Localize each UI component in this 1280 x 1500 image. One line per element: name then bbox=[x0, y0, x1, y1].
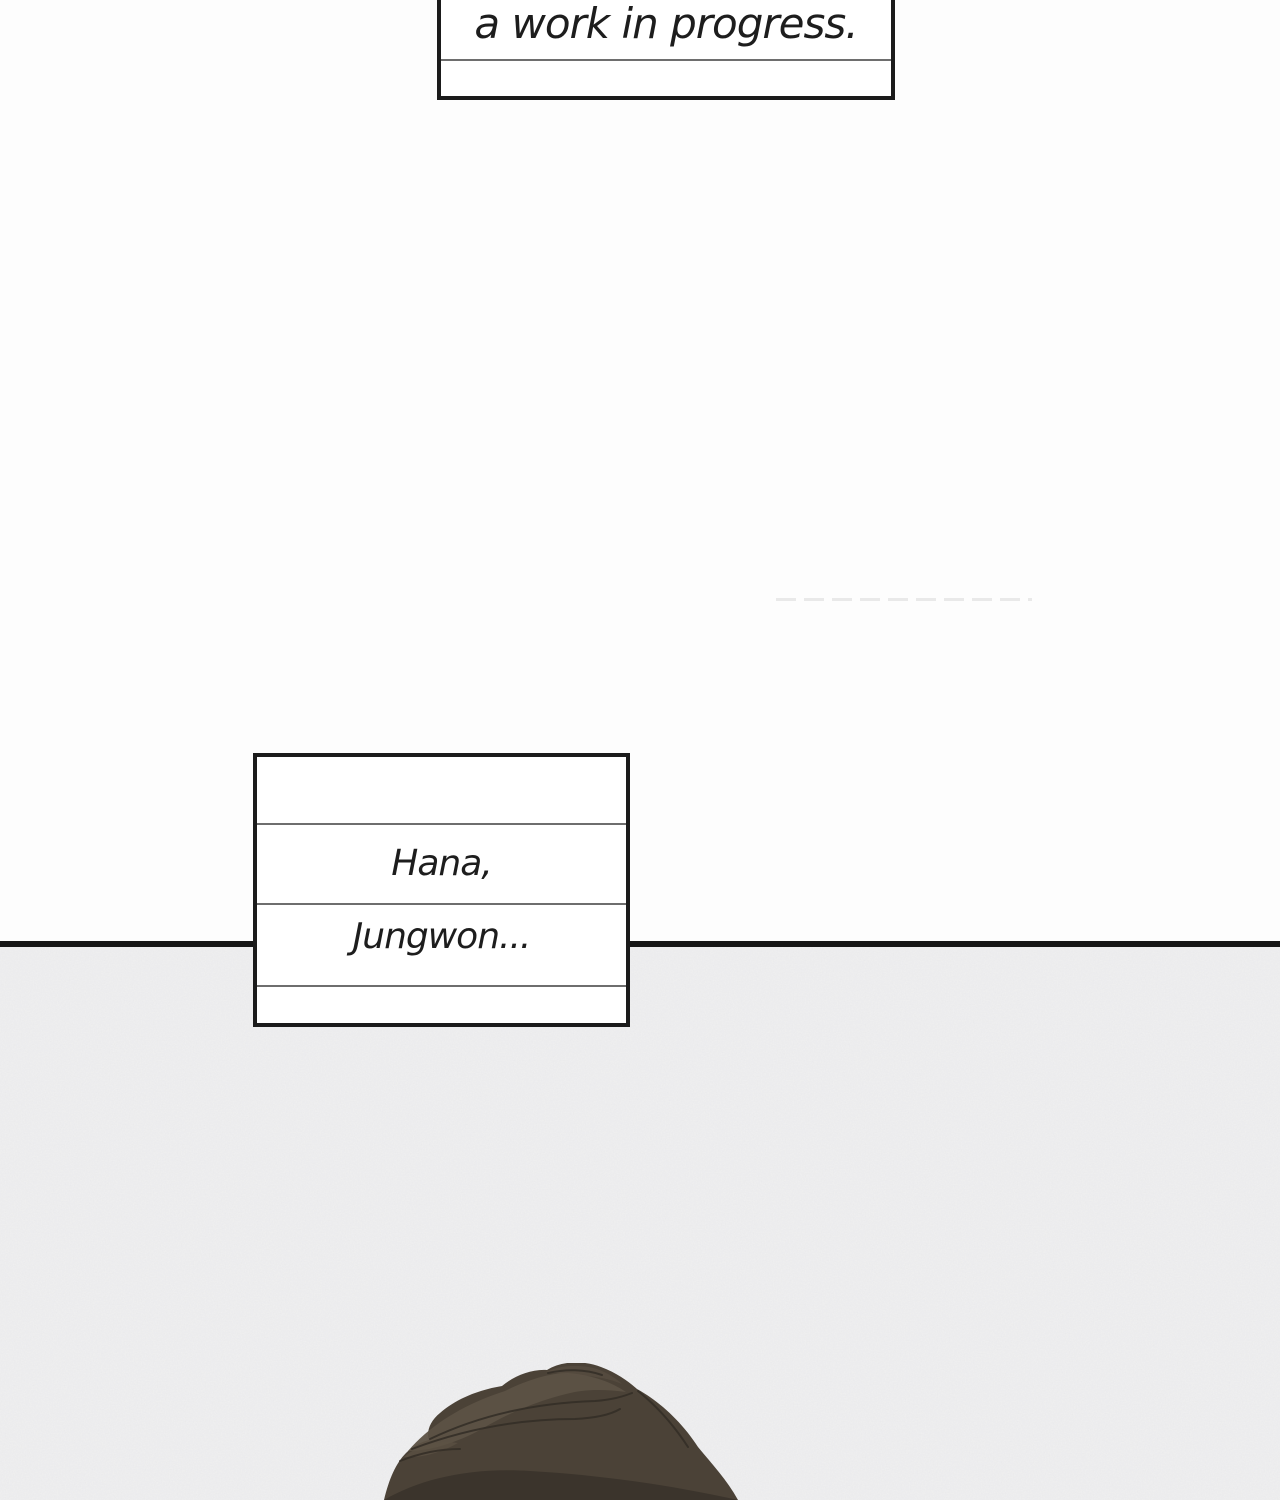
middle-caption-row-1: Hana, bbox=[257, 823, 626, 903]
middle-caption-empty-row-top bbox=[257, 757, 626, 823]
top-caption-box: a work in progress. bbox=[437, 0, 895, 100]
top-caption-text: a work in progress. bbox=[441, 1, 891, 47]
top-caption-empty-row bbox=[441, 59, 891, 96]
top-caption-row: a work in progress. bbox=[441, 0, 891, 59]
middle-caption-line1: Hana, bbox=[257, 842, 626, 885]
faint-sketch-line bbox=[776, 598, 1032, 601]
comic-page: a work in progress. Hana, Jungwon... bbox=[0, 0, 1280, 1500]
middle-caption-empty-row-bottom bbox=[257, 985, 626, 1023]
middle-caption-row-2: Jungwon... bbox=[257, 903, 626, 985]
middle-caption-line2: Jungwon... bbox=[257, 915, 626, 958]
character-hair-illustration bbox=[370, 1363, 760, 1500]
middle-caption-box: Hana, Jungwon... bbox=[253, 753, 630, 1027]
